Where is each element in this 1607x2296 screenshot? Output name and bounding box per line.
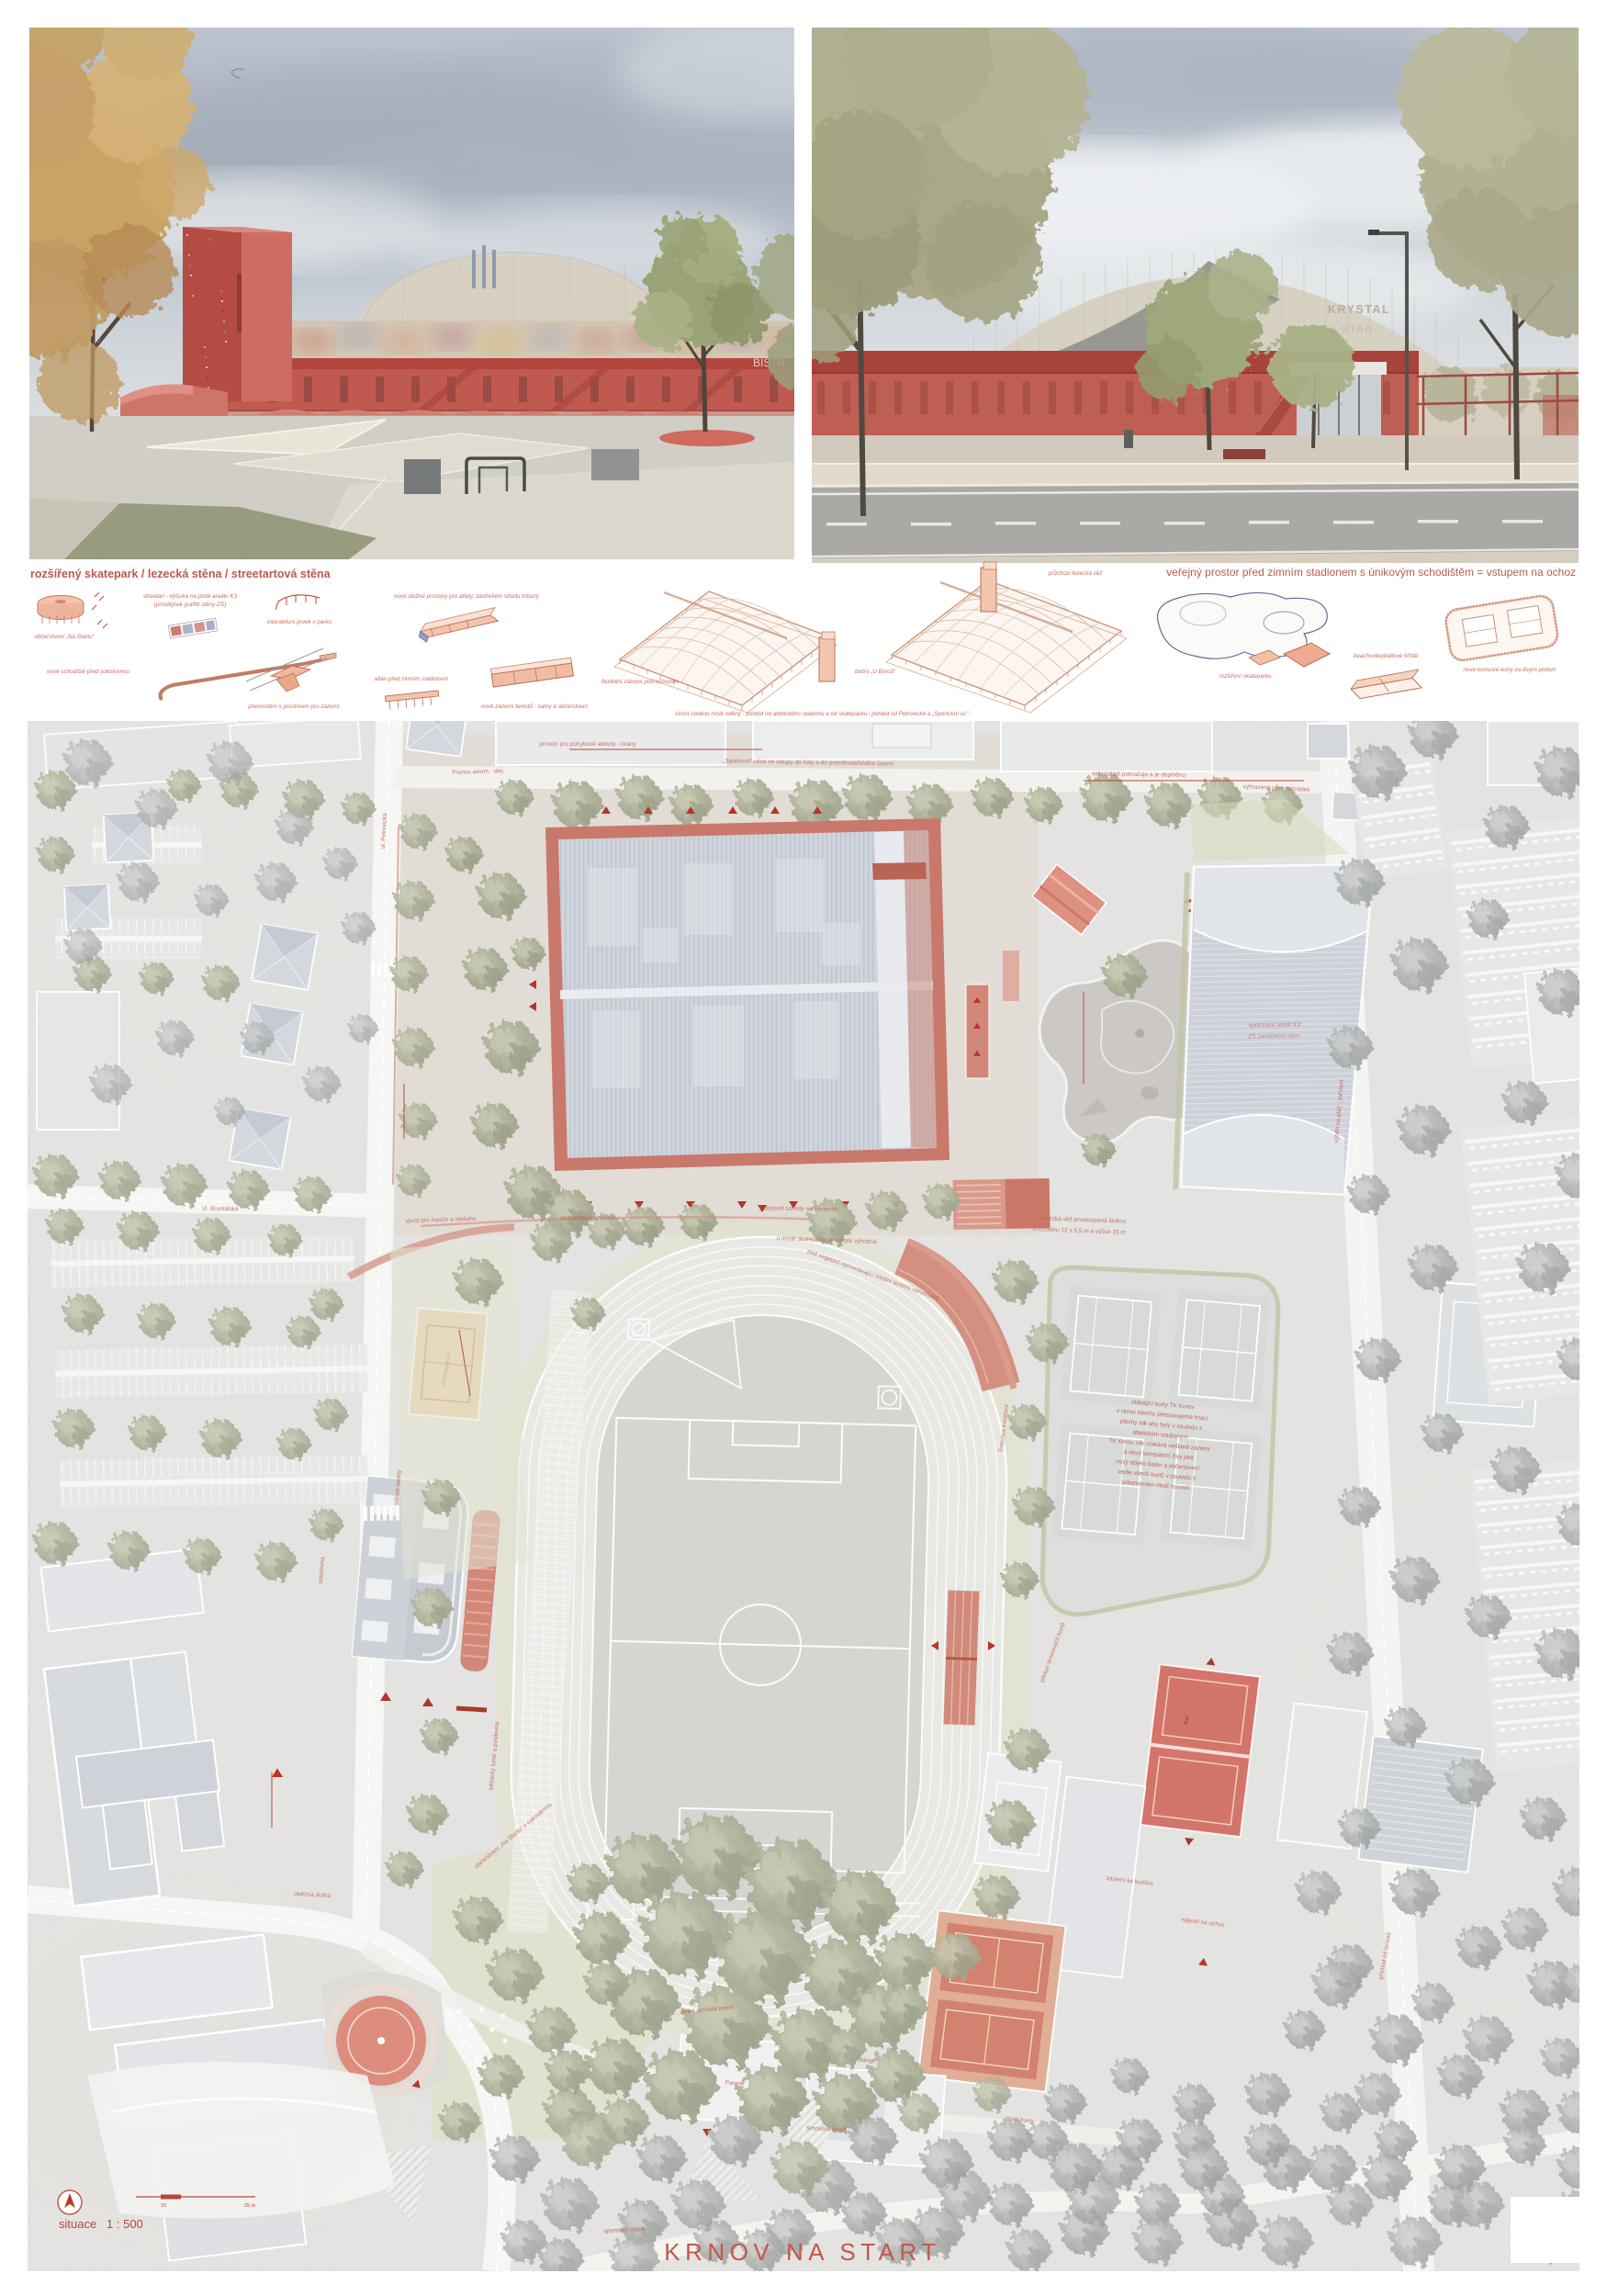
svg-text:nové schodiště před sokolovnou: nové schodiště před sokolovnou xyxy=(47,669,129,675)
svg-text:občerstvení „Na Startu“: občerstvení „Na Startu“ xyxy=(34,634,95,640)
svg-text:interaktivní prvek v parku: interaktivní prvek v parku xyxy=(267,619,332,625)
svg-text:streetart - výšivka na plotě a: streetart - výšivka na plotě areálu K3 xyxy=(143,593,238,600)
svg-text:přemostění s prostorem pro záz: přemostění s prostorem pro zázemí xyxy=(247,703,341,710)
svg-text:prostor pro pohybové aktivity: prostor pro pohybové aktivity - brány xyxy=(539,741,636,748)
svg-text:nové úložné prostory pro atlet: nové úložné prostory pro atlety, zastřeš… xyxy=(394,593,540,600)
svg-text:bistro „U Borců“: bistro „U Borců“ xyxy=(855,668,896,675)
svg-text:pobytové schody se zázemím: pobytové schody se zázemím xyxy=(759,1205,838,1212)
svg-text:vodopropustný beton: vodopropustný beton xyxy=(560,1215,616,1221)
svg-text:KRYSTAL: KRYSTAL xyxy=(1328,303,1390,316)
svg-text:průchozí lezecká věž: průchozí lezecká věž xyxy=(1048,569,1104,577)
svg-text:flexibilní zázemí pod ochozem: flexibilní zázemí pod ochozem xyxy=(601,679,679,685)
svg-text:I STAD: I STAD xyxy=(1333,324,1374,335)
svg-text:veřejný prostor před zimním st: veřejný prostor před zimním stadionem s … xyxy=(1166,566,1576,579)
svg-text:ul. Bruntálská: ul. Bruntálská xyxy=(202,1206,239,1213)
svg-text:nové tenisové kurty za živým p: nové tenisové kurty za živým plotem xyxy=(1463,667,1556,673)
svg-text:10: 10 xyxy=(161,2203,166,2209)
svg-text:rozšířený skatepark / lezecká: rozšířený skatepark / lezecká stěna / st… xyxy=(30,568,332,580)
svg-text:zimní stadion nově oděný - poh: zimní stadion nově oděný - pohled od atl… xyxy=(674,711,969,717)
svg-text:KRNOV NA START: KRNOV NA START xyxy=(664,2238,940,2266)
svg-text:rozšíření skateparku: rozšíření skateparku xyxy=(1219,673,1272,680)
svg-text:altán před zimním stadionem: altán před zimním stadionem xyxy=(375,676,449,682)
svg-text:sportovní areál K3: sportovní areál K3 xyxy=(1249,1022,1301,1030)
svg-text:nové zázemí tenistů - šatny a: nové zázemí tenistů - šatny a občerstven… xyxy=(481,703,589,710)
svg-text:25 m: 25 m xyxy=(244,2203,256,2209)
svg-text:(prostějšek graffiti stěny ZŠ): (prostějšek graffiti stěny ZŠ) xyxy=(154,600,226,608)
svg-text:beachvolleyballové hřiště: beachvolleyballové hřiště xyxy=(1354,653,1419,659)
svg-text:situace 1 : 500: situace 1 : 500 xyxy=(59,2217,143,2231)
